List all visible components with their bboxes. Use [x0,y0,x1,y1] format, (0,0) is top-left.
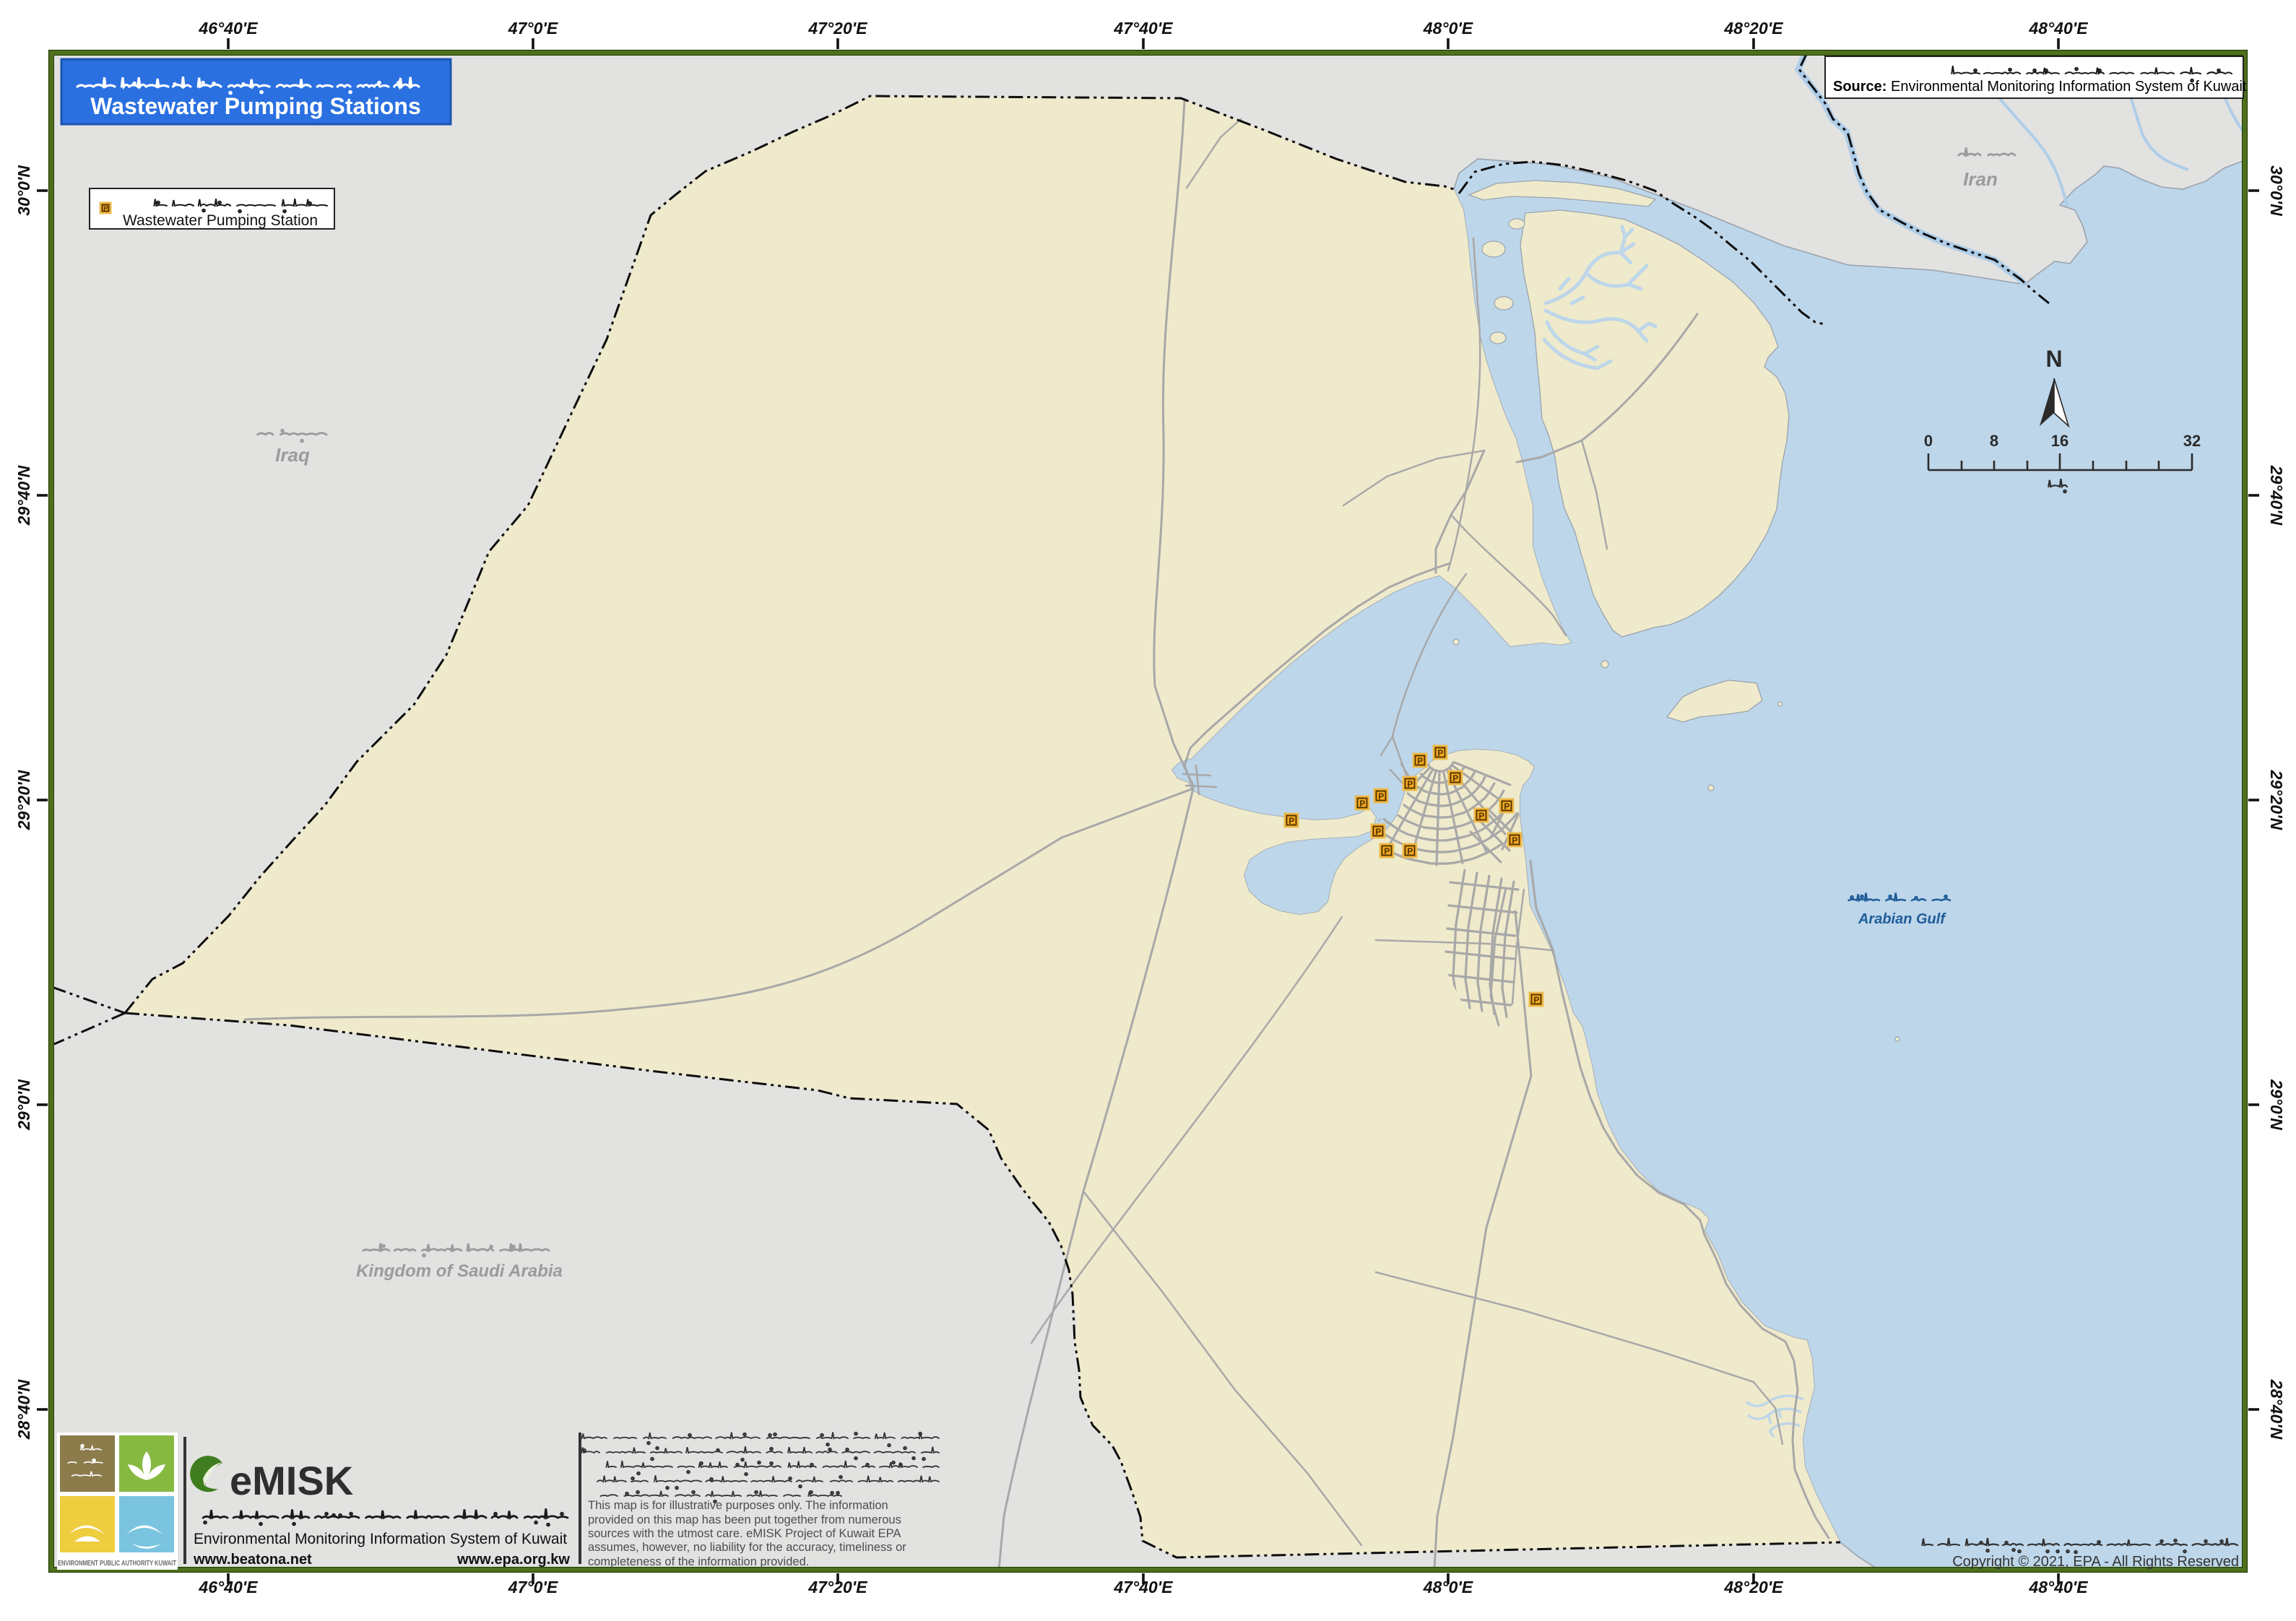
svg-text:30°0'N: 30°0'N [14,165,33,216]
svg-text:48°20'E: 48°20'E [1723,1578,1783,1596]
svg-text:48°20'E: 48°20'E [1723,19,1783,38]
svg-text:P: P [1437,749,1443,758]
svg-text:P: P [1452,774,1458,783]
svg-text:This map is for illustrative p: This map is for illustrative purposes on… [588,1499,888,1512]
svg-text:P: P [103,205,108,212]
svg-text:sources with the utmost care.: sources with the utmost care. eMISK Proj… [588,1527,901,1540]
svg-text:46°40'E: 46°40'E [198,19,258,38]
svg-text:16: 16 [2051,432,2068,450]
svg-text:N: N [2045,346,2062,372]
svg-text:47°0'E: 47°0'E [508,19,558,38]
svg-text:P: P [1359,799,1365,809]
svg-text:P: P [1375,827,1381,837]
svg-text:0: 0 [1924,432,1933,450]
svg-text:P: P [1512,836,1517,846]
svg-text:8: 8 [1990,432,1998,450]
svg-text:Arabian Gulf: Arabian Gulf [1858,911,1946,927]
svg-text:P: P [1407,780,1413,789]
svg-text:provided on this map has been: provided on this map has been put togeth… [588,1513,901,1526]
svg-text:P: P [1504,802,1509,812]
svg-text:P: P [1417,757,1423,766]
svg-text:P: P [1384,847,1390,856]
svg-text:29°0'N: 29°0'N [14,1079,33,1131]
svg-text:P: P [1407,847,1413,856]
svg-text:48°40'E: 48°40'E [2028,1578,2088,1596]
svg-text:29°0'N: 29°0'N [2267,1079,2286,1130]
svg-text:Iraq: Iraq [275,444,310,466]
svg-text:Kingdom of Saudi Arabia: Kingdom of Saudi Arabia [356,1261,563,1281]
svg-text:47°40'E: 47°40'E [1113,1578,1173,1596]
svg-text:Source: Environmental Monitori: Source: Environmental Monitoring Informa… [1833,79,2247,95]
svg-text:48°0'E: 48°0'E [1423,19,1473,38]
svg-text:www.epa.org.kw: www.epa.org.kw [456,1552,570,1568]
svg-text:P: P [1288,817,1294,826]
svg-text:28°40'N: 28°40'N [2267,1379,2286,1440]
svg-text:47°40'E: 47°40'E [1113,19,1173,38]
svg-text:30°0'N: 30°0'N [2267,165,2286,216]
svg-text:46°40'E: 46°40'E [198,1578,258,1596]
svg-text:Environmental Monitoring Infor: Environmental Monitoring Information Sys… [194,1531,567,1547]
svg-text:eMISK: eMISK [230,1458,353,1503]
svg-text:29°40'N: 29°40'N [14,465,33,526]
svg-text:29°20'N: 29°20'N [2267,770,2286,830]
svg-text:ENVIRONMENT PUBLIC AUTHORITY K: ENVIRONMENT PUBLIC AUTHORITY KUWAIT [58,1559,176,1568]
svg-text:48°40'E: 48°40'E [2028,19,2088,38]
svg-text:P: P [1478,812,1484,821]
svg-text:Iran: Iran [1963,168,1998,190]
svg-text:29°40'N: 29°40'N [2267,465,2286,526]
svg-text:Wastewater Pumping Station: Wastewater Pumping Station [123,212,318,229]
svg-text:47°20'E: 47°20'E [807,1578,867,1596]
svg-text:www.beatona.net: www.beatona.net [193,1552,312,1568]
svg-text:completeness of the informatio: completeness of the information provided… [588,1555,809,1568]
svg-text:P: P [1378,792,1384,801]
svg-text:47°20'E: 47°20'E [807,19,867,38]
svg-text:P: P [1533,996,1539,1005]
svg-text:47°0'E: 47°0'E [508,1578,558,1596]
svg-text:Wastewater Pumping Stations: Wastewater Pumping Stations [90,93,421,119]
svg-text:32: 32 [2183,432,2201,450]
svg-text:29°20'N: 29°20'N [14,770,33,830]
svg-text:Copyright © 2021, EPA - All Ri: Copyright © 2021, EPA - All Rights Reser… [1952,1554,2239,1570]
svg-text:assumes, however, no liability: assumes, however, no liability for the a… [588,1541,906,1554]
svg-text:48°0'E: 48°0'E [1423,1578,1473,1596]
svg-text:28°40'N: 28°40'N [14,1379,33,1440]
